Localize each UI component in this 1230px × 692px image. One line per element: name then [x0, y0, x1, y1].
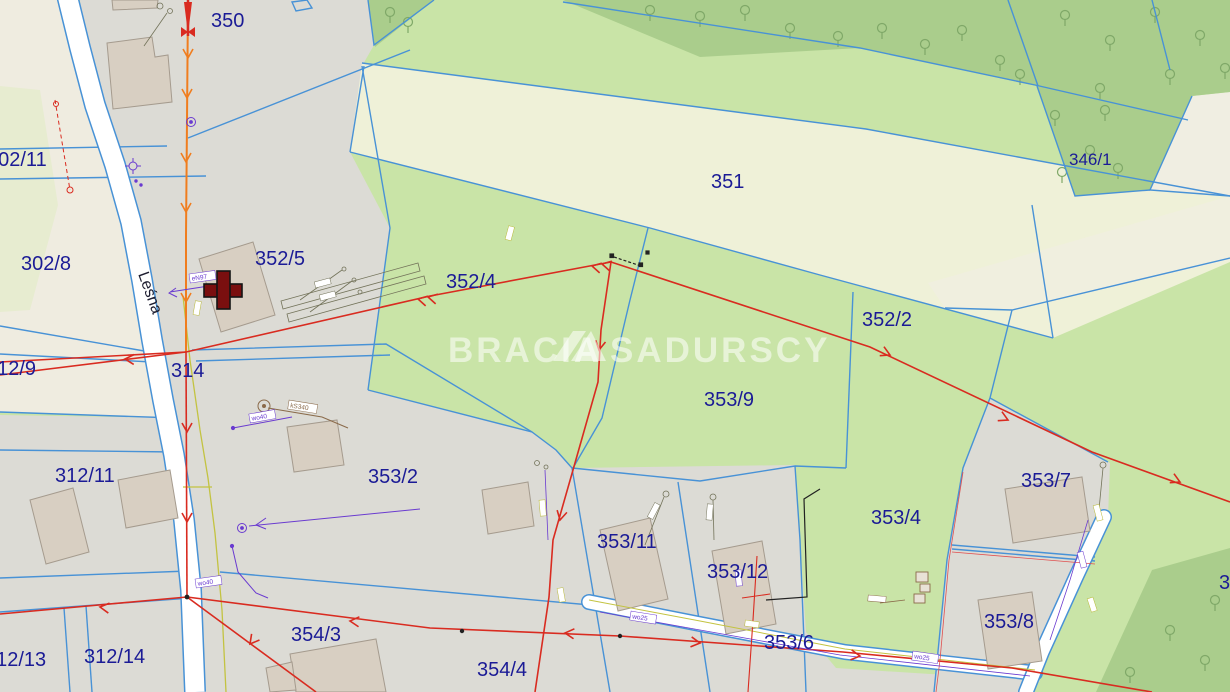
manhole-center — [190, 121, 193, 124]
parcel-label-352-4: 352/4 — [446, 271, 496, 293]
parcel-label-351: 351 — [711, 171, 744, 193]
watermark-text-right: SADURSCY — [610, 331, 830, 370]
parcel-label-302-8: 302/8 — [21, 253, 71, 275]
junction-dot — [618, 634, 621, 637]
parcel-label-353-9: 353/9 — [704, 389, 754, 411]
cable-node — [610, 254, 614, 258]
parcel-label-353-6: 353/6 — [764, 632, 814, 654]
cadastral-map: eN97 wo40 kS340 wo40 wo25 wo25 350 302/1… — [0, 0, 1230, 692]
parcel-label-353-4: 353/4 — [871, 507, 921, 529]
parcel-label-354-4: 354/4 — [477, 659, 527, 681]
map-canvas: eN97 wo40 kS340 wo40 wo25 wo25 350 302/1… — [0, 0, 1230, 692]
parcel-label-314: 314 — [171, 360, 204, 382]
parcel-label-353-12: 353/12 — [707, 561, 768, 583]
parcel-label-312-9: 312/9 — [0, 358, 36, 380]
parcel-label-312-11: 312/11 — [55, 465, 115, 487]
parcel-label-353-11: 353/11 — [597, 531, 657, 553]
annotation-box — [706, 504, 713, 520]
parcel-label-350: 350 — [211, 10, 244, 32]
parcel-label-302-11: 302/11 — [0, 149, 47, 171]
building — [482, 482, 534, 534]
cable-node — [646, 251, 649, 254]
cabinet — [920, 584, 930, 592]
telecom-point — [230, 544, 233, 547]
telecom-point — [135, 180, 137, 182]
annotation-box — [539, 500, 546, 516]
parcel-label-352-5: 352/5 — [255, 248, 305, 270]
cabinet — [914, 594, 925, 603]
cable-node — [639, 263, 643, 267]
junction-dot — [185, 595, 189, 599]
telecom-point — [140, 184, 142, 186]
parcel-label-353-7: 353/7 — [1021, 470, 1071, 492]
building — [287, 420, 344, 472]
parcel-label-right-clipped: 3 — [1219, 572, 1230, 594]
watermark: BRACIA SADURSCY — [448, 331, 830, 370]
parcel-label-312-13: 312/13 — [0, 649, 46, 671]
manhole-center — [241, 527, 244, 530]
cross-bar-v — [217, 271, 230, 309]
parcel-label-354-3: 354/3 — [291, 624, 341, 646]
parcel-label-312-14: 312/14 — [84, 646, 145, 668]
annotation-box — [868, 595, 886, 603]
parcel-label-352-2: 352/2 — [862, 309, 912, 331]
parcel-label-353-2: 353/2 — [368, 466, 418, 488]
parcel-label-346-1: 346/1 — [1069, 150, 1112, 169]
building — [118, 470, 178, 528]
parcel-label-353-8: 353/8 — [984, 611, 1034, 633]
telecom-point — [231, 426, 234, 429]
sewer-manhole-center — [263, 405, 266, 408]
junction-dot — [460, 629, 463, 632]
building — [112, 0, 158, 10]
power-line — [186, 352, 187, 597]
cabinet — [916, 572, 928, 582]
